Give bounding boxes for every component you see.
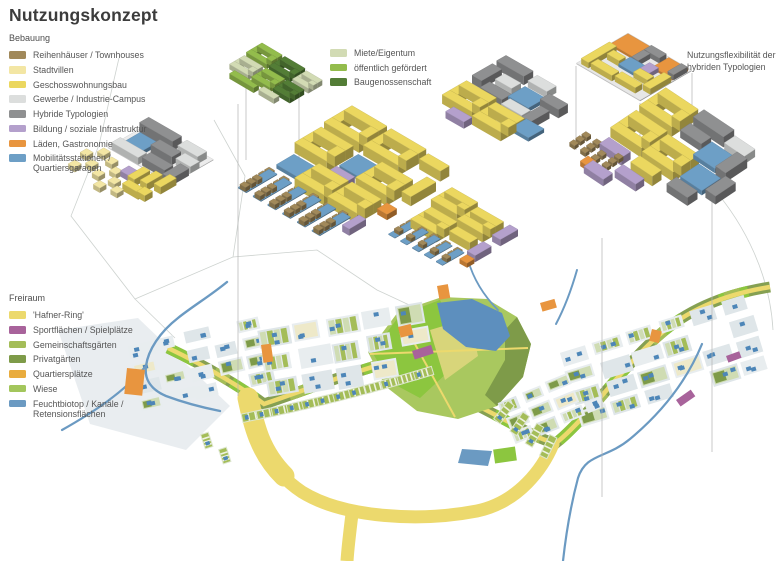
legend-bebauung: Bebauung Reihenhäuser / Townhouses Stadt… [9,33,151,178]
legend-color-swatch [9,140,26,148]
legend-item: Stadtvillen [9,65,151,75]
iso-cluster-right [569,88,755,206]
legend-item-label: Quartiersplätze [33,369,93,379]
legend-color-swatch [9,370,26,378]
legend-item-label: Sportflächen / Spielplätze [33,325,133,335]
legend-color-swatch [9,125,26,133]
legend-item: Sportflächen / Spielplätze [9,325,151,335]
legend-color-swatch [9,355,26,363]
legend-item: Läden, Gastronomie [9,139,151,149]
legend-item: Baugenossenschaft [330,77,431,87]
legend-item: Wiese [9,384,151,394]
legend-color-swatch [9,311,26,319]
legend-eigentum: Miete/Eigentum öffentlich gefördert Baug… [330,48,431,92]
legend-color-swatch [9,95,26,103]
legend-color-swatch [9,154,26,162]
legend-color-swatch [9,385,26,393]
ownership-overlay-cluster [229,43,322,104]
legend-color-swatch [9,341,26,349]
page-title: Nutzungskonzept [9,5,158,26]
legend-item: Miete/Eigentum [330,48,431,58]
legend-freiraum-items: 'Hafner-Ring' Sportflächen / Spielplätze… [9,310,151,418]
legend-color-swatch [9,81,26,89]
iso-cluster-center [442,55,568,141]
legend-color-swatch [9,51,26,59]
legend-item-label: Privatgärten [33,354,80,364]
legend-item-label: Reihenhäuser / Townhouses [33,50,144,60]
legend-item-label: Geschosswohnungsbau [33,80,127,90]
legend-color-swatch [330,78,347,86]
legend-item-label: öffentlich gefördert [354,63,427,73]
legend-item: Feuchtbiotop / Kanäle / Retensionsfläche… [9,399,151,419]
legend-item-label: 'Hafner-Ring' [33,310,84,320]
legend-item: Mobilitätsstationen / Quartiersgaragen [9,153,151,173]
flex-typology-annotation: Nutzungsflexibilität der hybriden Typolo… [687,50,780,74]
legend-item-label: Wiese [33,384,57,394]
legend-color-swatch [9,326,26,334]
legend-color-swatch [330,64,347,72]
legend-color-swatch [9,110,26,118]
legend-item-label: Stadtvillen [33,65,74,75]
legend-item: Gewerbe / Industrie-Campus [9,94,151,104]
legend-item-label: Mobilitätsstationen / Quartiersgaragen [33,153,151,173]
retention-basin [458,449,492,466]
legend-bebauung-heading: Bebauung [9,33,151,43]
legend-item-label: Gemeinschaftsgärten [33,340,117,350]
legend-item: Bildung / soziale Infrastruktur [9,124,151,134]
legend-item-label: Baugenossenschaft [354,77,431,87]
legend-bebauung-items: Reihenhäuser / Townhouses Stadtvillen Ge… [9,50,151,173]
legend-item-label: Gewerbe / Industrie-Campus [33,94,145,104]
legend-eigentum-items: Miete/Eigentum öffentlich gefördert Baug… [330,48,431,88]
legend-freiraum: Freiraum 'Hafner-Ring' Sportflächen / Sp… [9,293,151,423]
legend-item-label: Läden, Gastronomie [33,139,113,149]
nutzungskonzept-diagram: Nutzungskonzept Bebauung Reihenhäuser / … [0,0,780,561]
legend-item: Hybride Typologien [9,109,151,119]
legend-color-swatch [330,49,347,57]
legend-color-swatch [9,66,26,74]
legend-item: Quartiersplätze [9,369,151,379]
legend-color-swatch [9,400,26,408]
legend-item: Gemeinschaftsgärten [9,340,151,350]
legend-item: Reihenhäuser / Townhouses [9,50,151,60]
legend-item-label: Feuchtbiotop / Kanäle / Retensionsfläche… [33,399,151,419]
legend-item-label: Hybride Typologien [33,109,108,119]
legend-item: Geschosswohnungsbau [9,80,151,90]
legend-freiraum-heading: Freiraum [9,293,151,303]
legend-item-label: Miete/Eigentum [354,48,415,58]
flex-typology-cluster [576,33,691,101]
legend-item-label: Bildung / soziale Infrastruktur [33,124,146,134]
legend-item: Privatgärten [9,354,151,364]
legend-item: öffentlich gefördert [330,63,431,73]
legend-item: 'Hafner-Ring' [9,310,151,320]
